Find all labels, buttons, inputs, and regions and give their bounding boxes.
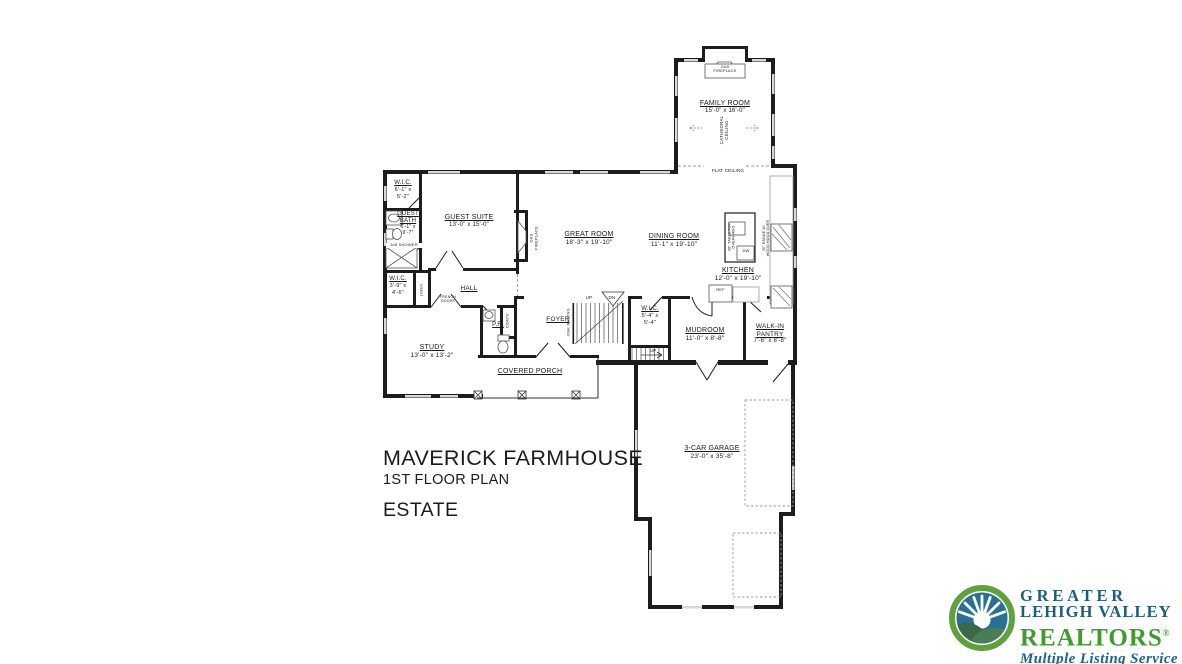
mudroom-dims: 11'-0" x 8'-8": [668, 335, 742, 343]
oak-railing-text: OAK RAILING: [567, 308, 572, 336]
plan-title: MAVERICK FARMHOUSE: [383, 446, 643, 471]
island-overhang-label: 36" TABLETOP OVERHANG: [728, 223, 737, 251]
french-doors-line2: DOORS: [434, 299, 462, 303]
kitchen-label: KITCHEN 12'-0" x 19'-10": [700, 267, 776, 283]
ref-text: REF: [709, 288, 732, 293]
garage-name: 3-CAR GARAGE: [672, 445, 752, 453]
wic-hall-label: W.I.C. 3'-9" x 4'-6": [384, 276, 412, 296]
mls-logo: GREATER LEHIGH VALLEY REALTORS® Multiple…: [946, 578, 1182, 664]
gas-fireplace-family-line2: FIREPLACE: [705, 69, 745, 73]
garage-dims: 23'-0" x 35'-8": [672, 453, 752, 461]
coats-text: COATS: [506, 314, 511, 328]
guest-suite-label: GUEST SUITE 13'-0" x 15'-0": [433, 214, 505, 229]
wic-guest-dims2: 5'-2": [388, 194, 418, 200]
guest-bath-label: GUEST BATH 6'-1" x 9'-7": [394, 211, 422, 237]
title-block: MAVERICK FARMHOUSE 1ST FLOOR PLAN ESTATE: [383, 446, 643, 522]
plan-subtitle: 1ST FLOOR PLAN: [383, 472, 643, 488]
wic-guest-label: W.I.C. 6'-1" x 5'-2": [388, 180, 418, 200]
pantry-name2: PANTRY: [744, 331, 796, 339]
plan-series: ESTATE: [383, 499, 643, 522]
linen-label: LINEN: [420, 284, 425, 297]
floor-plan-page: FAMILY ROOM 15'-0" x 16'-0" GAS FIREPLAC…: [0, 0, 1182, 664]
dining-room-name: DINING ROOM: [634, 233, 714, 241]
great-room-name: GREAT ROOM: [548, 231, 630, 239]
mudroom-label: MUDROOM 11'-0" x 8'-8": [668, 327, 742, 343]
gas-fireplace-great-line2: FIREPLACE: [534, 226, 539, 250]
guest-suite-dims: 13'-0" x 15'-0": [433, 222, 505, 229]
covered-porch-name: COVERED PORCH: [490, 368, 570, 376]
mls-logo-text: GREATER LEHIGH VALLEY REALTORS® Multiple…: [1020, 588, 1182, 664]
garage-label: 3-CAR GARAGE 23'-0" x 35'-8": [672, 445, 752, 461]
kitchen-dims: 12'-0" x 19'-10": [700, 275, 776, 283]
mudroom-name: MUDROOM: [668, 327, 742, 335]
family-room-name: FAMILY ROOM: [685, 100, 765, 108]
oak-railing-label: OAK RAILING: [567, 308, 572, 336]
stairs-up2-label: UP: [646, 348, 660, 353]
study-dims: 13'-0" x 13'-2": [396, 352, 468, 360]
wic-stairs-dims2: 5'-4": [630, 320, 670, 326]
family-room-label: FAMILY ROOM 15'-0" x 16'-0": [685, 100, 765, 115]
gas-fireplace-great-label: GAS FIREPLACE: [529, 226, 538, 250]
cathedral-ceiling-line2: CEILING: [724, 116, 729, 145]
realtors-text: REALTORS: [1020, 624, 1163, 651]
guest-bath-name1: GUEST: [394, 211, 422, 218]
dining-room-dims: 11'-1" x 19'-10": [634, 241, 714, 249]
great-room-dims: 18'-3" x 19'-10": [548, 239, 630, 247]
stairs-up-label: UP: [582, 295, 596, 300]
foyer-label: FOYER: [538, 316, 578, 324]
family-room-dims: 15'-0" x 16'-0": [685, 108, 765, 115]
cathedral-ceiling-label: CATHEDRAL CEILING: [719, 116, 729, 145]
study-label: STUDY 13'-0" x 13'-2": [396, 344, 468, 360]
dining-room-label: DINING ROOM 11'-1" x 19'-10": [634, 233, 714, 249]
shower-text: 3x5 SHOWER: [388, 243, 420, 248]
wic-hall-dims2: 4'-6": [384, 290, 412, 296]
flat-ceiling-text: FLAT CEILING: [707, 168, 749, 173]
study-name: STUDY: [396, 344, 468, 352]
dw-text: DW: [739, 249, 753, 254]
covered-porch-label: COVERED PORCH: [490, 368, 570, 376]
coats-label: COATS: [506, 314, 511, 328]
kitchen-name: KITCHEN: [700, 267, 776, 275]
shower-label: 3x5 SHOWER: [386, 243, 422, 248]
hall-label: HALL: [452, 285, 486, 293]
island-overhang-line2: OVERHANG: [732, 223, 736, 251]
pantry-name1: WALK-IN: [744, 323, 796, 331]
stairs-dn-label: DN: [605, 295, 619, 300]
stairs-up2-text: UP: [646, 348, 660, 353]
wic-stairs-name: W.I.C.: [630, 306, 670, 313]
sunrise-valley-logo-icon: [948, 584, 1016, 652]
guest-bath-dims2: 9'-7": [394, 231, 422, 237]
range-note-line2: WOOD HOOD OVER: [766, 220, 770, 256]
wic-stairs-label: W.I.C. 5'-4" x 5'-4": [630, 306, 670, 326]
guest-suite-name: GUEST SUITE: [433, 214, 505, 222]
linen-text: LINEN: [420, 284, 425, 297]
stairs-up-text: UP: [582, 295, 596, 300]
logo-line-lehigh-valley: LEHIGH VALLEY: [1020, 604, 1182, 620]
logo-tagline: Multiple Listing Service: [1020, 651, 1182, 664]
wic-guest-name: W.I.C.: [388, 180, 418, 187]
flat-ceiling-label: FLAT CEILING: [705, 168, 751, 173]
ref-label: REF: [709, 288, 732, 293]
range-note-label: 36" RANGE W/ WOOD HOOD OVER: [762, 220, 770, 256]
stairs-dn-text: DN: [605, 295, 619, 300]
wic-hall-name: W.I.C.: [384, 276, 412, 283]
pantry-dims: 7'-6" x 8'-8": [744, 338, 796, 345]
floor-plan-drawing: [0, 0, 1182, 664]
registered-mark: ®: [1163, 628, 1170, 638]
gas-fireplace-family-label: GAS FIREPLACE: [705, 65, 745, 74]
french-doors-label: FRENCH DOORS: [434, 295, 462, 303]
great-room-label: GREAT ROOM 18'-3" x 19'-10": [548, 231, 630, 247]
logo-line-realtors: REALTORS®: [1020, 620, 1182, 651]
foyer-name: FOYER: [538, 316, 578, 324]
hall-name: HALL: [452, 285, 486, 293]
walk-in-pantry-label: WALK-IN PANTRY 7'-6" x 8'-8": [744, 323, 796, 345]
dw-label: DW: [739, 249, 753, 254]
